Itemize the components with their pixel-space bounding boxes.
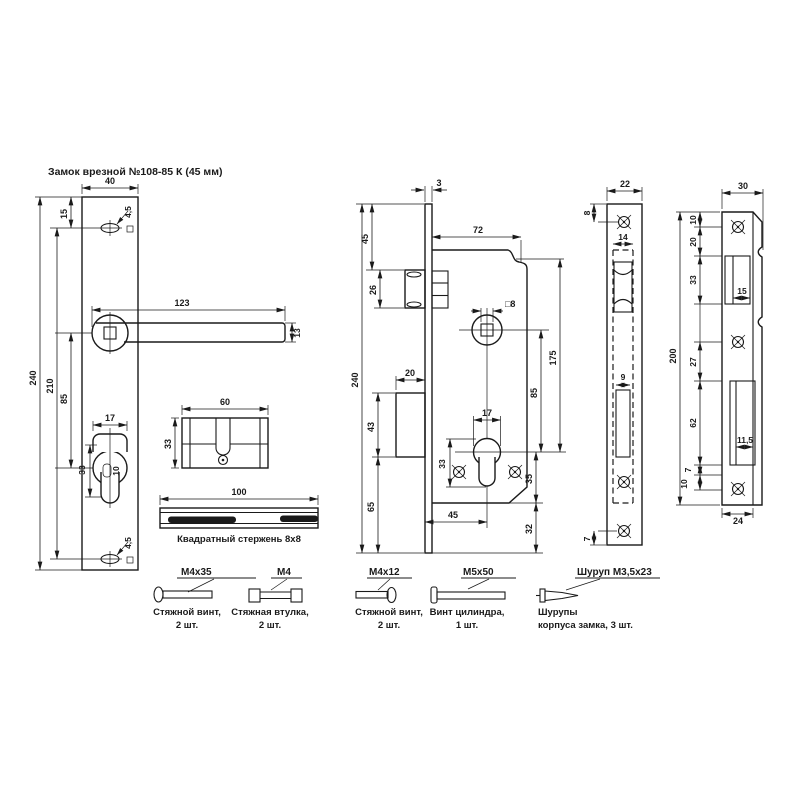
dim-strike-width: 30 (738, 181, 748, 191)
dim-rod-length: 100 (231, 487, 246, 497)
deadbolt (396, 393, 425, 457)
hardware-item-tie-sleeve: M4 Стяжная втулка, 2 шт. (231, 567, 308, 631)
dim-strike-height: 200 (668, 348, 678, 363)
hardware-caption: Стяжная втулка, (231, 607, 308, 618)
dim-bottom-hole-dia: 4,5 (123, 537, 133, 549)
dim-top-to-latch: 45 (360, 234, 370, 244)
hardware-qty: 2 шт. (259, 620, 281, 631)
body-cylinder-hole (455, 439, 566, 487)
faceplate-front-view: 22 8 14 9 (582, 179, 642, 545)
screw-shaft (163, 591, 212, 598)
dim-cyl-hole-w: 17 (105, 413, 115, 423)
dim-bolt-window: 11,5 (737, 435, 753, 445)
chain-dim-20: 20 (688, 237, 698, 247)
strike-screw-hole-top (731, 220, 745, 234)
rod-knurl-left (168, 517, 236, 524)
hardware-caption: Стяжной винт, (153, 607, 221, 618)
dim-handle-length: 123 (174, 298, 189, 308)
screw-shaft (437, 592, 505, 599)
dim-height-175: 175 (548, 350, 558, 365)
dim-bottom-margin: 32 (524, 524, 534, 534)
strike-bolt-window (730, 381, 755, 465)
dim-top-hole-offset: 8 (582, 210, 592, 215)
dim-plate-height: 240 (28, 370, 38, 385)
faceplate-screw-hole-top (617, 215, 631, 229)
hardware-qty: 1 шт. (456, 620, 478, 631)
hardware-label: M4 (277, 567, 291, 578)
screw-body (545, 591, 578, 601)
chain-dim-33: 33 (688, 275, 698, 285)
rod-knurl-right (280, 516, 318, 523)
strike-plate-view: 30 15 11,5 (668, 181, 763, 526)
hardware-row: M4x35 Стяжной винт, 2 шт. M4 Стяжная вту… (153, 567, 660, 631)
plate-outline (82, 197, 138, 570)
drawing-title: Замок врезной №108-85 К (45 мм) (48, 166, 222, 178)
hardware-item-tie-screw-long: M4x35 Стяжной винт, 2 шт. (153, 567, 256, 631)
hardware-item-cylinder-screw: M5x50 Винт цилиндра, 1 шт. (430, 567, 516, 631)
drawing-page: Замок врезной №108-85 К (45 мм) 40 240 2… (0, 0, 800, 800)
dim-latch-window: 15 (737, 286, 747, 296)
hardware-item-wood-screws: Шуруп М3,5x23 Шурупы корпуса замка, 3 шт… (536, 567, 660, 631)
cylinder-body (182, 418, 268, 468)
dim-bolt-to-bottom: 65 (366, 502, 376, 512)
screw-head (154, 587, 163, 602)
faceplate-screw-hole-mid (617, 475, 631, 489)
handle-lever (96, 323, 285, 342)
hardware-caption: Шурупы (538, 607, 578, 618)
screw-head (540, 589, 545, 602)
strike-screw-hole-bottom (731, 482, 745, 496)
sleeve-end-left (249, 589, 260, 602)
dim-latch-height: 26 (368, 285, 378, 295)
spindle-hole: □8 (459, 299, 549, 528)
dim-axes-spacing: 85 (529, 388, 539, 398)
dim-faceplate-thickness: 3 (436, 178, 441, 188)
hardware-caption: Винт цилиндра, (430, 607, 505, 618)
screw-shaft (356, 592, 388, 599)
dim-bolt-slot-w: 9 (621, 372, 626, 382)
faceplate-edge (425, 204, 432, 553)
dim-top-hole-dia: 4,5 (123, 206, 133, 218)
rod-caption: Квадратный стержень 8x8 (177, 534, 301, 545)
plate-cylinder-hole: 10 (93, 428, 127, 508)
door-handle (92, 312, 285, 354)
screw-head (431, 587, 437, 603)
hardware-label: Шуруп М3,5x23 (577, 567, 652, 578)
lock-technical-drawing: Замок врезной №108-85 К (45 мм) 40 240 2… (0, 0, 800, 800)
dim-cylinder-length: 60 (220, 397, 230, 407)
dim-body-cyl-w: 17 (482, 408, 492, 418)
faceplate-screw-hole-bottom (617, 524, 631, 538)
bottom-screw-hole: 4,5 (98, 537, 133, 567)
hardware-item-tie-screw-short: M4x12 Стяжной винт, 2 шт. (355, 567, 423, 631)
strike-chain-dims: 10 20 33 27 62 7 10 (679, 212, 722, 490)
handle-plate-view: 40 240 210 15 85 4,5 (28, 176, 302, 570)
strike-latch-window (725, 256, 750, 304)
hardware-qty: корпуса замка, 3 шт. (538, 620, 633, 631)
cylinder-cam-slot (216, 418, 230, 455)
dim-top-offset: 15 (59, 209, 69, 219)
hardware-label: M5x50 (463, 567, 494, 578)
screw-post-left (452, 465, 466, 479)
dim-cyl-to-bottom: 35 (524, 474, 534, 484)
hardware-qty: 2 шт. (378, 620, 400, 631)
dim-holes-span: 210 (45, 378, 55, 393)
hardware-qty: 2 шт. (176, 620, 198, 631)
dim-faceplate-width: 22 (620, 179, 630, 189)
dim-cyl-hole-h: 33 (77, 465, 87, 475)
dim-strike-flat: 24 (733, 516, 743, 526)
chain-dim-7: 7 (683, 467, 693, 472)
top-screw-hole: 4,5 (98, 206, 133, 236)
faceplate-latch-window (614, 262, 632, 312)
dim-backset: 45 (448, 510, 458, 520)
dim-handle-to-cyl: 85 (59, 394, 69, 404)
dim-spindle-square: □8 (505, 299, 515, 309)
lock-body-view: 3 240 45 26 43 (350, 178, 566, 553)
dim-handle-width: 13 (292, 328, 302, 338)
dim-bolt-throw: 20 (405, 368, 415, 378)
sleeve-end-right (291, 589, 302, 602)
dim-plate-width: 40 (105, 176, 115, 186)
strike-screw-hole-mid (731, 335, 745, 349)
dim-bolt-height: 43 (366, 422, 376, 432)
dim-cylinder-height: 33 (163, 439, 173, 449)
faceplate-bolt-slot (616, 390, 630, 457)
dim-body-height: 240 (350, 372, 360, 387)
dim-cyl-circle: 10 (111, 466, 121, 476)
cylinder-view: 60 33 (163, 397, 268, 468)
hardware-label: M4x12 (369, 567, 400, 578)
dim-slot-width: 14 (618, 232, 628, 242)
dim-body-depth: 72 (473, 225, 483, 235)
hardware-caption: Стяжной винт, (355, 607, 423, 618)
hardware-label: M4x35 (181, 567, 212, 578)
chain-dim-10b: 10 (679, 479, 689, 489)
chain-dim-62: 62 (688, 418, 698, 428)
dim-bottom-hole-offset: 7 (582, 536, 592, 541)
latch-bolt (405, 270, 448, 308)
chain-dim-27: 27 (688, 357, 698, 367)
square-rod-view: 100 Квадратный стержень 8x8 (160, 487, 318, 545)
chain-dim-10a: 10 (688, 215, 698, 225)
screw-post-right (508, 465, 522, 479)
dim-body-cyl-h: 33 (437, 459, 447, 469)
